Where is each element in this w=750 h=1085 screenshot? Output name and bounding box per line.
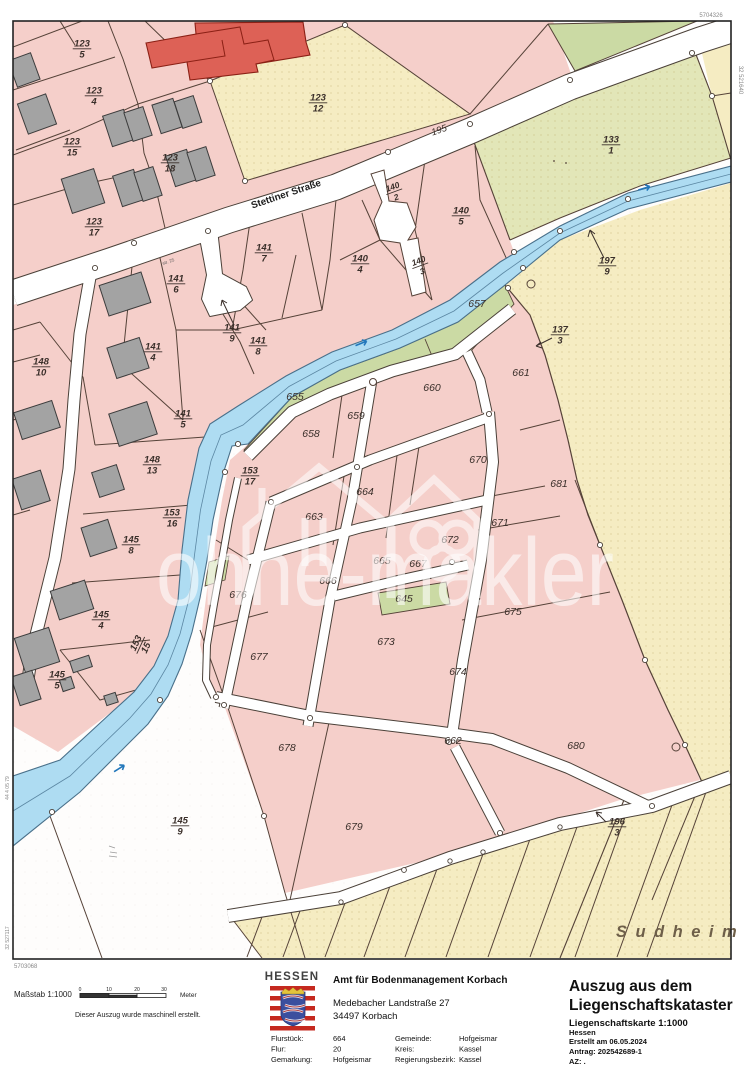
svg-text:9: 9 [177, 827, 183, 838]
svg-text:664: 664 [333, 1034, 346, 1043]
svg-text:123: 123 [310, 93, 327, 104]
svg-text:5: 5 [79, 50, 85, 61]
svg-text:ohne-makler: ohne-makler [156, 519, 614, 626]
svg-text:Kassel: Kassel [459, 1055, 482, 1064]
svg-text:678: 678 [278, 742, 296, 754]
svg-text:32 527117: 32 527117 [5, 926, 11, 949]
svg-text:141: 141 [145, 342, 161, 353]
svg-text:Kreis:: Kreis: [395, 1045, 414, 1054]
svg-text:17: 17 [89, 228, 100, 239]
svg-text:148: 148 [33, 357, 50, 368]
svg-text:6: 6 [173, 285, 179, 296]
svg-text:662: 662 [444, 735, 462, 747]
svg-text:Dieser Auszug wurde maschinell: Dieser Auszug wurde maschinell erstellt. [75, 1012, 201, 1019]
svg-text:5: 5 [180, 420, 186, 431]
svg-text:7: 7 [261, 254, 267, 265]
svg-text:8: 8 [255, 347, 261, 358]
svg-text:Antrag: 202542689-1: Antrag: 202542689-1 [569, 1047, 642, 1056]
svg-text:655: 655 [286, 391, 304, 403]
svg-text:658: 658 [302, 428, 320, 440]
svg-text:123: 123 [162, 153, 179, 164]
svg-text:674: 674 [449, 666, 467, 678]
svg-text:141: 141 [250, 336, 266, 347]
svg-text:Gemarkung:: Gemarkung: [271, 1055, 312, 1064]
svg-text:Medebacher Landstraße 27: Medebacher Landstraße 27 [333, 998, 450, 1009]
svg-text:Liegenschaftskataster: Liegenschaftskataster [569, 997, 733, 1014]
svg-text:HESSEN: HESSEN [265, 971, 320, 983]
svg-text:4: 4 [97, 621, 104, 632]
svg-text:Hofgeismar: Hofgeismar [459, 1034, 498, 1043]
svg-text:1: 1 [608, 146, 613, 157]
svg-text:140: 140 [352, 254, 369, 265]
svg-text:123: 123 [74, 39, 91, 50]
svg-text:153: 153 [164, 508, 181, 519]
svg-text:123: 123 [86, 86, 103, 97]
svg-text:Regierungsbezirk:: Regierungsbezirk: [395, 1055, 455, 1064]
svg-text:10: 10 [106, 987, 112, 993]
svg-text:9: 9 [604, 267, 610, 278]
svg-text:3: 3 [557, 336, 563, 347]
svg-text:5: 5 [54, 681, 60, 692]
svg-text:Erstellt am 06.05.2024: Erstellt am 06.05.2024 [569, 1037, 648, 1046]
svg-text:Hessen: Hessen [569, 1028, 596, 1037]
svg-text:137: 137 [552, 325, 569, 336]
svg-text:679: 679 [345, 821, 363, 833]
svg-text:5704326: 5704326 [699, 13, 723, 19]
svg-text:8: 8 [128, 546, 134, 557]
svg-text:673: 673 [377, 636, 395, 648]
svg-text:44 4 05 79: 44 4 05 79 [5, 776, 11, 800]
svg-text:141: 141 [256, 243, 272, 254]
svg-text:5703068: 5703068 [14, 964, 38, 970]
svg-text:123: 123 [86, 217, 103, 228]
svg-text:13: 13 [147, 466, 158, 477]
svg-text:Amt für Bodenmanagement Korbac: Amt für Bodenmanagement Korbach [333, 975, 507, 986]
svg-text:140: 140 [453, 206, 470, 217]
svg-text:4: 4 [356, 265, 363, 276]
svg-text:196: 196 [609, 817, 626, 828]
svg-text:Maßstab 1:1000: Maßstab 1:1000 [14, 990, 72, 999]
svg-text:0: 0 [79, 987, 82, 993]
svg-text:123: 123 [64, 137, 81, 148]
svg-text:9: 9 [229, 334, 235, 345]
svg-text:145: 145 [49, 670, 66, 681]
svg-text:30: 30 [161, 987, 167, 993]
svg-text:18: 18 [165, 164, 176, 175]
svg-text:680: 680 [567, 740, 585, 752]
svg-text:141: 141 [175, 409, 191, 420]
svg-text:145: 145 [172, 816, 189, 827]
svg-text:657: 657 [468, 298, 487, 310]
svg-text:AZ: .: AZ: . [569, 1057, 586, 1066]
svg-text:Gemeinde:: Gemeinde: [395, 1034, 432, 1043]
svg-text:Flurstück:: Flurstück: [271, 1034, 304, 1043]
svg-text:17: 17 [245, 477, 256, 488]
svg-text:133: 133 [603, 135, 620, 146]
svg-text:659: 659 [347, 410, 365, 422]
svg-text:141: 141 [168, 274, 184, 285]
svg-text:141: 141 [224, 323, 240, 334]
svg-text:15: 15 [67, 148, 78, 159]
svg-text:Auszug aus dem: Auszug aus dem [569, 978, 692, 995]
svg-text:Hofgeismar: Hofgeismar [333, 1055, 372, 1064]
svg-text:34497 Korbach: 34497 Korbach [333, 1011, 397, 1022]
svg-text:12: 12 [313, 104, 324, 115]
svg-text:4: 4 [90, 97, 97, 108]
svg-text:681: 681 [550, 478, 568, 490]
svg-text:660: 660 [423, 382, 441, 394]
svg-text:3: 3 [614, 828, 620, 839]
svg-text:10: 10 [36, 368, 47, 379]
svg-text:145: 145 [123, 535, 140, 546]
svg-text:20: 20 [134, 987, 140, 993]
svg-text:153: 153 [242, 466, 259, 477]
svg-text:677: 677 [250, 651, 269, 663]
svg-text:20: 20 [333, 1045, 341, 1054]
svg-text:Kassel: Kassel [459, 1045, 482, 1054]
svg-text:145: 145 [93, 610, 110, 621]
svg-text:5: 5 [458, 217, 464, 228]
svg-text:4: 4 [149, 353, 156, 364]
svg-text:148: 148 [144, 455, 161, 466]
svg-text:Flur:: Flur: [271, 1045, 286, 1054]
svg-text:Meter: Meter [180, 992, 197, 999]
svg-text:197: 197 [599, 256, 616, 267]
svg-text:670: 670 [469, 454, 487, 466]
svg-text:Sudheim: Sudheim [616, 923, 745, 941]
svg-text:32 521640: 32 521640 [737, 66, 743, 95]
svg-text:661: 661 [512, 367, 530, 379]
